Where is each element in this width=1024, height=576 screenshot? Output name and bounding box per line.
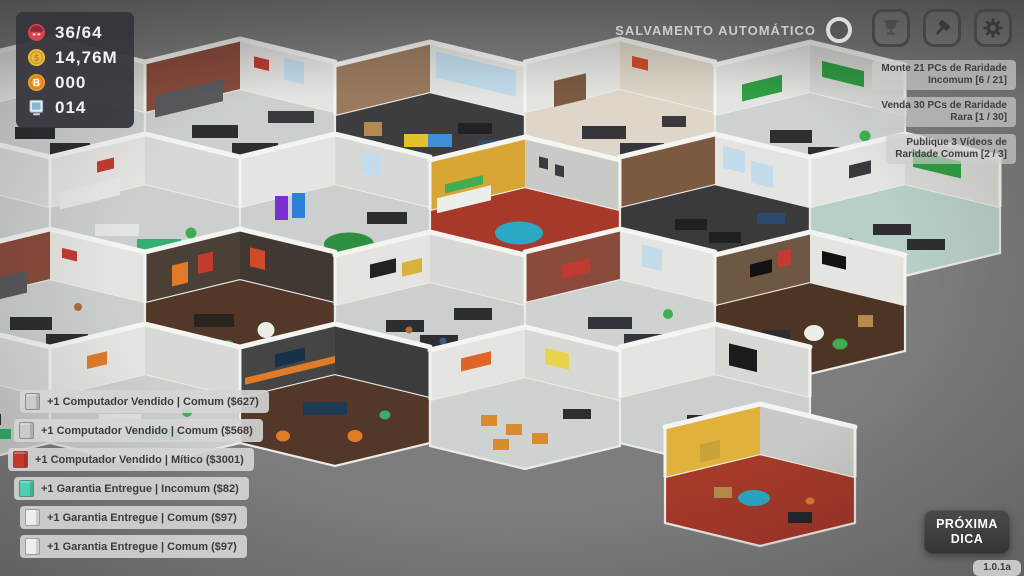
trophy-icon bbox=[880, 17, 902, 39]
quest-line2: Incomum [6 / 21] bbox=[881, 75, 1007, 87]
pc-sold-icon bbox=[13, 451, 28, 468]
settings-button[interactable] bbox=[974, 9, 1012, 47]
pc-count: 014 bbox=[55, 98, 86, 118]
quest-line2: Rara [1 / 30] bbox=[881, 112, 1007, 124]
gear-icon bbox=[982, 17, 1004, 39]
warranty-icon bbox=[25, 509, 40, 526]
quest-line1: Monte 21 PCs de Raridade bbox=[881, 63, 1007, 75]
svg-text:$: $ bbox=[34, 53, 40, 64]
staff-icon bbox=[27, 23, 46, 42]
next-tip-button[interactable]: PRÓXIMA DICA bbox=[924, 510, 1010, 554]
svg-text:B: B bbox=[33, 78, 40, 89]
room-cafeteria[interactable] bbox=[430, 327, 620, 469]
resources-panel: 36/64 $ 14,76M B 000 014 bbox=[16, 12, 134, 128]
quest-item: Venda 30 PCs de Raridade Rara [1 / 30] bbox=[872, 97, 1016, 127]
autosave-spinner-icon bbox=[826, 17, 852, 43]
bitcoin-amount: 000 bbox=[55, 73, 86, 93]
notification-text: +1 Computador Vendido | Comum ($568) bbox=[41, 425, 253, 437]
notification-toast: +1 Garantia Entregue | Comum ($97) bbox=[20, 506, 247, 529]
notification-text: +1 Garantia Entregue | Incomum ($82) bbox=[41, 483, 239, 495]
pc-sold-icon bbox=[25, 393, 40, 410]
game-screen: 36/64 $ 14,76M B 000 014 SALVAMENTO AUTO… bbox=[0, 0, 1024, 576]
notification-toast: +1 Computador Vendido | Comum ($568) bbox=[14, 419, 263, 442]
autosave-label: SALVAMENTO AUTOMÁTICO bbox=[615, 23, 816, 38]
achievements-button[interactable] bbox=[872, 9, 910, 47]
bitcoin-icon: B bbox=[27, 73, 46, 92]
bitcoin-counter: B 000 bbox=[27, 71, 118, 94]
notification-toast: +1 Garantia Entregue | Comum ($97) bbox=[20, 535, 247, 558]
money-amount: 14,76M bbox=[55, 48, 118, 68]
toolbar bbox=[872, 9, 1012, 47]
money-counter: $ 14,76M bbox=[27, 46, 118, 69]
notification-text: +1 Garantia Entregue | Comum ($97) bbox=[47, 512, 237, 524]
notification-text: +1 Garantia Entregue | Comum ($97) bbox=[47, 541, 237, 553]
notification-text: +1 Computador Vendido | Comum ($627) bbox=[47, 396, 259, 408]
staff-counter: 36/64 bbox=[27, 21, 118, 44]
pc-icon bbox=[27, 98, 46, 117]
quest-line1: Venda 30 PCs de Raridade bbox=[881, 100, 1007, 112]
notification-toast: +1 Garantia Entregue | Incomum ($82) bbox=[14, 477, 249, 500]
gavel-icon bbox=[931, 17, 953, 39]
pc-counter: 014 bbox=[27, 96, 118, 119]
quest-tracker-list: Monte 21 PCs de Raridade Incomum [6 / 21… bbox=[872, 60, 1016, 164]
warranty-icon bbox=[25, 538, 40, 555]
next-tip-line2: DICA bbox=[926, 532, 1008, 547]
notification-list: +1 Computador Vendido | Comum ($627) +1 … bbox=[6, 390, 269, 558]
next-tip-line1: PRÓXIMA bbox=[926, 517, 1008, 532]
money-icon: $ bbox=[27, 48, 46, 67]
warranty-icon bbox=[19, 480, 34, 497]
notification-toast: +1 Computador Vendido | Mítico ($3001) bbox=[8, 448, 254, 471]
autosave-indicator: SALVAMENTO AUTOMÁTICO bbox=[615, 17, 852, 43]
quest-item: Publique 3 Vídeos de Raridade Comum [2 /… bbox=[886, 134, 1016, 164]
room-vip-curtain[interactable] bbox=[665, 404, 855, 546]
quest-line2: Raridade Comum [2 / 3] bbox=[895, 149, 1007, 161]
notification-text: +1 Computador Vendido | Mítico ($3001) bbox=[35, 454, 244, 466]
quest-line1: Publique 3 Vídeos de bbox=[895, 137, 1007, 149]
quest-item: Monte 21 PCs de Raridade Incomum [6 / 21… bbox=[872, 60, 1016, 90]
staff-count: 36/64 bbox=[55, 23, 103, 43]
pc-sold-icon bbox=[19, 422, 34, 439]
notification-toast: +1 Computador Vendido | Comum ($627) bbox=[20, 390, 269, 413]
version-badge: 1.0.1a bbox=[973, 560, 1021, 576]
auction-button[interactable] bbox=[923, 9, 961, 47]
